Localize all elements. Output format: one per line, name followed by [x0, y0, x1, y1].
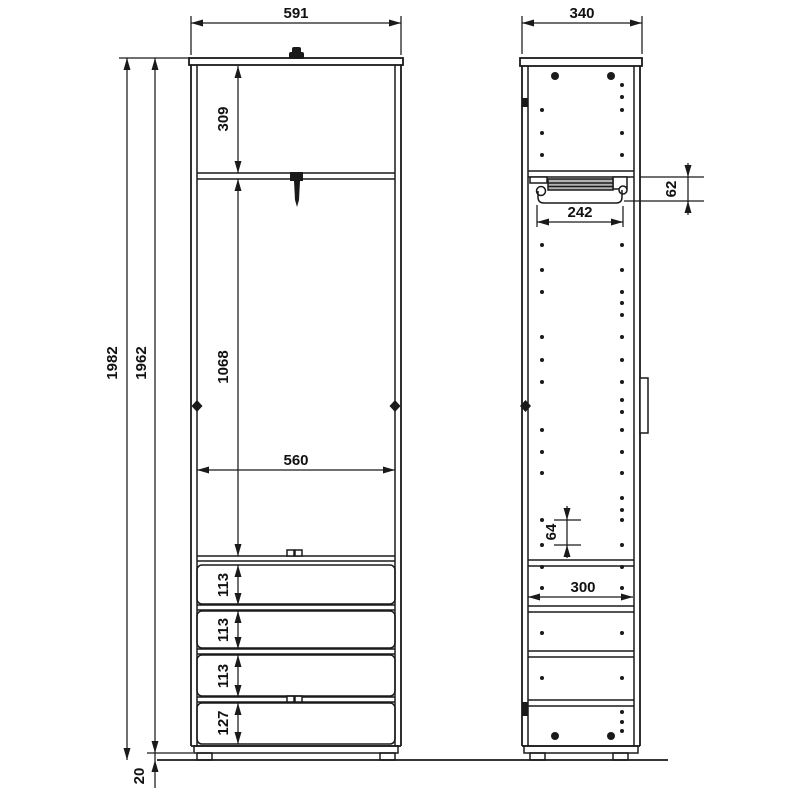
front-right-cam-fitting [390, 400, 401, 412]
dim-label-64: 64 [543, 523, 560, 540]
dim-label-drawer-1: 113 [215, 573, 232, 597]
side-view [520, 58, 648, 760]
side-top-shelf [528, 171, 634, 177]
side-plinth [524, 746, 638, 760]
dim-label-340: 340 [569, 5, 594, 22]
front-plinth [194, 746, 398, 760]
front-left-cam-fitting [192, 400, 203, 412]
dim-label-1962: 1962 [133, 346, 150, 379]
side-walls [522, 66, 640, 746]
assembly-holes [551, 72, 615, 740]
front-side-walls [191, 65, 401, 746]
dim-label-242: 242 [567, 204, 592, 221]
front-top-panel [189, 58, 403, 65]
dim-drawer-2: 113 [215, 611, 242, 649]
dim-rail-clearance: 62 [624, 163, 704, 215]
dim-label-560: 560 [283, 452, 308, 469]
wardrobe-technical-drawing: 591 340 1982 1962 [0, 0, 800, 800]
dim-label-drawer-3: 113 [215, 664, 232, 688]
dim-drawer-3: 113 [215, 655, 242, 697]
door-hinge-top [523, 98, 529, 107]
dim-label-309: 309 [215, 106, 232, 131]
dim-drawer-1: 113 [215, 565, 242, 605]
dim-rail-length: 242 [537, 204, 623, 227]
front-drawer-top-shelf [197, 550, 395, 561]
dim-label-62: 62 [663, 181, 680, 198]
side-top-panel [520, 58, 642, 66]
dim-hanging-section: 1068 [215, 179, 242, 556]
drawing-svg: 591 340 1982 1962 [0, 0, 800, 800]
dim-label-drawer-4: 127 [215, 710, 232, 735]
dim-side-depth: 340 [522, 5, 642, 54]
clothes-rail-side [530, 177, 627, 203]
dim-label-20: 20 [131, 768, 148, 785]
dim-label-591: 591 [283, 5, 308, 22]
dim-inner-width: 560 [197, 452, 395, 474]
dim-top-section: 309 [215, 66, 242, 173]
front-view [189, 47, 403, 760]
dimensions: 591 340 1982 1962 [104, 5, 704, 788]
dim-label-drawer-2: 113 [215, 618, 232, 642]
door-hinge-bottom [523, 702, 528, 716]
dim-hole-pitch: 64 [543, 506, 581, 558]
door-handle [640, 378, 648, 433]
dim-drawer-4: 127 [215, 703, 242, 744]
dim-label-300: 300 [570, 579, 595, 596]
dim-inner-depth: 300 [528, 579, 633, 601]
dim-carcass-height: 1962 [133, 58, 193, 753]
front-top-fitting [289, 47, 304, 59]
clothes-rail-hook [290, 172, 303, 207]
dim-foot-height: 20 [131, 753, 159, 788]
dim-label-1982: 1982 [104, 346, 121, 379]
dim-label-1068: 1068 [215, 350, 232, 383]
dim-overall-height: 1982 [104, 58, 190, 760]
